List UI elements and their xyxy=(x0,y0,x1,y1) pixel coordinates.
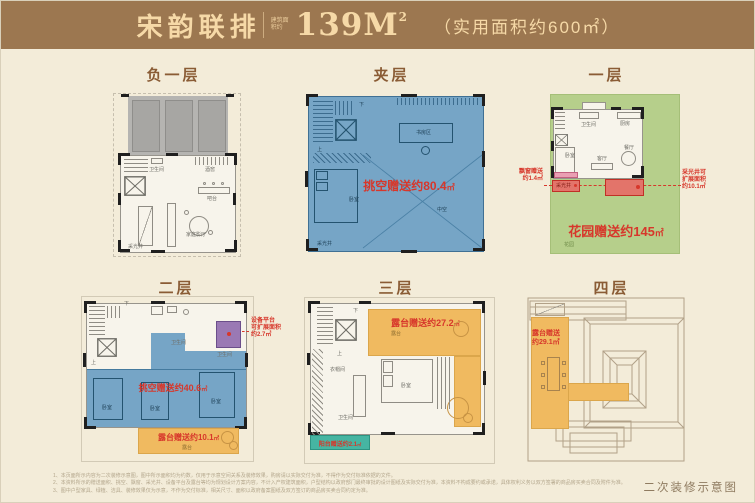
wall-segment xyxy=(151,301,165,304)
cinema-label: 家庭影厅 xyxy=(186,232,206,238)
stair-down-label: 下 xyxy=(353,308,358,314)
elevator-icon xyxy=(97,338,117,357)
bedroom-label: 卧室 xyxy=(211,399,221,405)
bar-stool xyxy=(221,182,224,185)
plant xyxy=(229,441,238,450)
terrace-gift-text: 露台赠送约29.1㎡ xyxy=(532,329,572,347)
bay-note-line1: 飘窗赠送 xyxy=(499,169,543,176)
stairs xyxy=(313,101,333,145)
cloakroom-label: 衣帽间 xyxy=(330,367,345,373)
wall-segment xyxy=(359,301,371,304)
sofa xyxy=(591,163,613,170)
void-gift-text: 挑空赠送约80.4㎡ xyxy=(329,177,489,194)
balcony-gift-unit: ㎡ xyxy=(357,442,361,447)
terrace-gift-unit: ㎡ xyxy=(214,436,219,442)
terrace-gift-line1: 露台赠送 xyxy=(532,329,572,338)
stairs xyxy=(317,307,333,347)
floor-title-f3: 三层 xyxy=(324,277,469,298)
area-number: 139M xyxy=(296,7,399,43)
annotation-dot xyxy=(636,185,640,189)
bedroom-label: 卧室 xyxy=(401,383,411,389)
equip-note-line1: 设备平台 xyxy=(251,318,301,325)
void-cross-lines xyxy=(361,151,484,251)
pillow xyxy=(383,361,393,373)
wall-segment xyxy=(401,94,417,97)
bathroom-label: 卫生间 xyxy=(338,415,353,421)
stairs xyxy=(107,306,121,318)
brand-block: 宋韵联排 建筑面积约 139M2 （实用面积约600㎡） xyxy=(137,7,621,44)
wall-segment xyxy=(483,371,486,385)
wall-segment xyxy=(83,353,86,367)
terrace-gift-value: 露台赠送约10.1 xyxy=(158,433,214,442)
lightwell-note: 采光井可扩展面积约10.1㎡ xyxy=(682,170,728,191)
wall-corner xyxy=(473,423,485,435)
well-note-line2: 扩展面积 xyxy=(682,177,728,184)
dining-table xyxy=(621,151,636,166)
wall-segment xyxy=(151,250,165,253)
equip-note-line2: 可扩展面积 xyxy=(251,325,301,332)
void-gift-unit: ㎡ xyxy=(201,386,207,393)
usable-area-label: （实用面积约600㎡） xyxy=(434,13,620,38)
bath-fixtures xyxy=(579,112,599,119)
projection-screen xyxy=(138,206,153,246)
vanity-fixture xyxy=(353,375,366,417)
well-note-line3: 约10.1㎡ xyxy=(682,184,728,191)
annotation-dash-line xyxy=(242,331,249,332)
bedroom-label: 卧室 xyxy=(565,153,575,159)
bar-counter xyxy=(198,187,230,194)
annotation-dot xyxy=(227,332,231,336)
sink-fixture xyxy=(167,306,177,313)
bathroom-label: 卫生间 xyxy=(581,122,596,128)
chair xyxy=(541,361,545,365)
roof-dormer xyxy=(535,303,565,316)
garden-label: 花园 xyxy=(564,242,574,248)
bedroom-label: 卧室 xyxy=(349,197,359,203)
chair xyxy=(541,373,545,377)
sofa xyxy=(167,203,176,247)
garden-gift-value: 花园赠送约145 xyxy=(568,224,655,239)
annotation-dot xyxy=(574,184,577,187)
void-gift-value: 挑空赠送约80.4 xyxy=(363,179,446,193)
void-label: 中空 xyxy=(437,207,447,213)
header-bar: 宋韵联排 建筑面积约 139M2 （实用面积约600㎡） xyxy=(1,1,755,49)
garden-gift-text: 花园赠送约145㎡ xyxy=(556,221,676,240)
wall-segment xyxy=(233,193,236,205)
stairs xyxy=(555,112,565,132)
bay-window xyxy=(554,172,578,178)
lightwell-label: 采光井 xyxy=(317,241,332,247)
chair xyxy=(562,385,566,389)
chair xyxy=(562,373,566,377)
wall-segment xyxy=(118,193,121,205)
cellar-shelf xyxy=(195,157,231,165)
terrace-area-arm xyxy=(569,383,629,401)
outdoor-table xyxy=(547,357,560,391)
plant xyxy=(463,413,473,423)
stair-down-label: 下 xyxy=(359,102,364,108)
wall-corner xyxy=(473,301,485,313)
wall-segment xyxy=(305,171,308,187)
living-label: 客厅 xyxy=(597,156,607,162)
closet-hatch xyxy=(312,349,323,439)
wall-segment xyxy=(307,353,310,365)
wall-segment xyxy=(226,94,234,97)
void-area-right xyxy=(185,351,246,369)
balcony-gift-value: 阳台赠送约2.1 xyxy=(319,442,357,448)
parking-stall xyxy=(165,100,193,152)
bedroom-label: 卧室 xyxy=(150,406,160,412)
area-superscript: 2 xyxy=(399,10,408,24)
bar-stool xyxy=(203,182,206,185)
bay-window-note: 飘窗赠送约1.4㎡ xyxy=(499,169,543,183)
wall-corner xyxy=(632,166,644,178)
project-title: 宋韵联排 xyxy=(137,7,261,44)
stairs xyxy=(335,101,355,115)
balcony-gift-text: 阳台赠送约2.1㎡ xyxy=(311,439,369,448)
parking-stall xyxy=(198,100,226,152)
void-gift-unit: ㎡ xyxy=(447,183,455,192)
elevator-icon xyxy=(335,119,357,141)
bathroom-label: 卫生间 xyxy=(171,340,186,346)
schematic-caption: 二次装修示意图 xyxy=(644,479,739,495)
bar-label: 吧台 xyxy=(207,196,217,202)
bathroom-label: 卫生间 xyxy=(149,167,164,173)
terrace-label: 露台 xyxy=(182,445,192,451)
brochure-page: 宋韵联排 建筑面积约 139M2 （实用面积约600㎡） 负一层 夹层 一层 二… xyxy=(0,0,755,503)
stairs xyxy=(124,159,148,173)
wardrobe xyxy=(437,357,451,409)
floor-title-f1: 一层 xyxy=(534,64,679,85)
kitchen-label: 厨房 xyxy=(620,121,630,127)
bath-fixtures xyxy=(151,306,163,315)
header-divider xyxy=(263,12,264,38)
study-label: 书房区 xyxy=(416,130,431,136)
parking-stall xyxy=(132,100,160,152)
chair xyxy=(184,210,189,215)
garden-gift-unit: ㎡ xyxy=(655,228,664,238)
bed xyxy=(199,372,235,418)
wall-corner xyxy=(235,301,247,313)
area-prefix-label: 建筑面积约 xyxy=(271,18,291,32)
bedroom-label: 卧室 xyxy=(102,405,112,411)
floor-title-b1: 负一层 xyxy=(101,64,246,85)
plant xyxy=(453,321,469,337)
void-gift-value: 挑空赠送约40.6 xyxy=(139,383,202,393)
wall-segment xyxy=(611,107,621,110)
shelf xyxy=(397,98,481,105)
wall-segment xyxy=(381,432,395,435)
wall-segment xyxy=(121,94,129,97)
well-note-line1: 采光井可 xyxy=(682,170,728,177)
area-value: 139M2 xyxy=(296,7,408,43)
cellar-label: 酒窖 xyxy=(205,167,215,173)
void-corridor xyxy=(151,333,185,369)
dining-label: 餐厅 xyxy=(624,145,634,151)
void-gift-text: 挑空赠送约40.6㎡ xyxy=(119,381,227,394)
wall-segment xyxy=(551,141,554,151)
equipment-note: 设备平台可扩展面积约2.7㎡ xyxy=(251,318,301,339)
terrace-label: 露台 xyxy=(391,331,401,337)
equip-note-line3: 约2.7㎡ xyxy=(251,332,301,339)
disclaimer-line-2: 2、本资料所示的赠送面积、挑空、飘窗、采光井、设备平台及露台等均为规划设计方案内… xyxy=(53,480,665,487)
bathroom-label: 卫生间 xyxy=(217,352,232,358)
pillow xyxy=(316,182,328,191)
floor-title-mezz: 夹层 xyxy=(319,64,464,85)
wall-segment xyxy=(166,153,178,156)
terrace-gift-value: 露台赠送约27.2 xyxy=(391,318,454,328)
bar-stool xyxy=(212,182,215,185)
floor-title-f2: 二层 xyxy=(104,277,249,298)
disclaimer-notes: 1、本页面所示内容为二次装修示意图，图中所示面积均为约数，仅用于示意空间关系及装… xyxy=(53,473,665,495)
bed xyxy=(555,147,575,175)
pillow xyxy=(383,375,393,387)
stair-down-label: 下 xyxy=(124,301,129,307)
kitchen-counter xyxy=(617,112,641,119)
wall-segment xyxy=(245,353,248,367)
chair xyxy=(541,385,545,389)
lightwell-label: 采光井 xyxy=(556,183,571,189)
bay-note-line2: 约1.4㎡ xyxy=(499,176,543,183)
lightwell-label: 采光井 xyxy=(128,244,143,250)
stair-up-label: 上 xyxy=(91,360,96,366)
stair-up-label: 上 xyxy=(337,351,342,357)
toilet-fixture xyxy=(183,309,189,315)
sink-fixture xyxy=(151,158,163,164)
terrace-gift-line2: 约29.1㎡ xyxy=(532,338,572,347)
elevator-icon xyxy=(124,176,146,196)
disclaimer-line-3: 3、图中户型家具、绿植、洁具、装修效果仅为示意，不作为交付标准，相关尺寸、面积以… xyxy=(53,488,665,495)
stairs xyxy=(89,306,105,336)
elevator-icon xyxy=(335,319,357,341)
pillow xyxy=(316,171,328,180)
wall-corner xyxy=(225,240,237,252)
chair xyxy=(562,361,566,365)
elevator-icon xyxy=(555,134,568,146)
chair xyxy=(208,230,213,235)
